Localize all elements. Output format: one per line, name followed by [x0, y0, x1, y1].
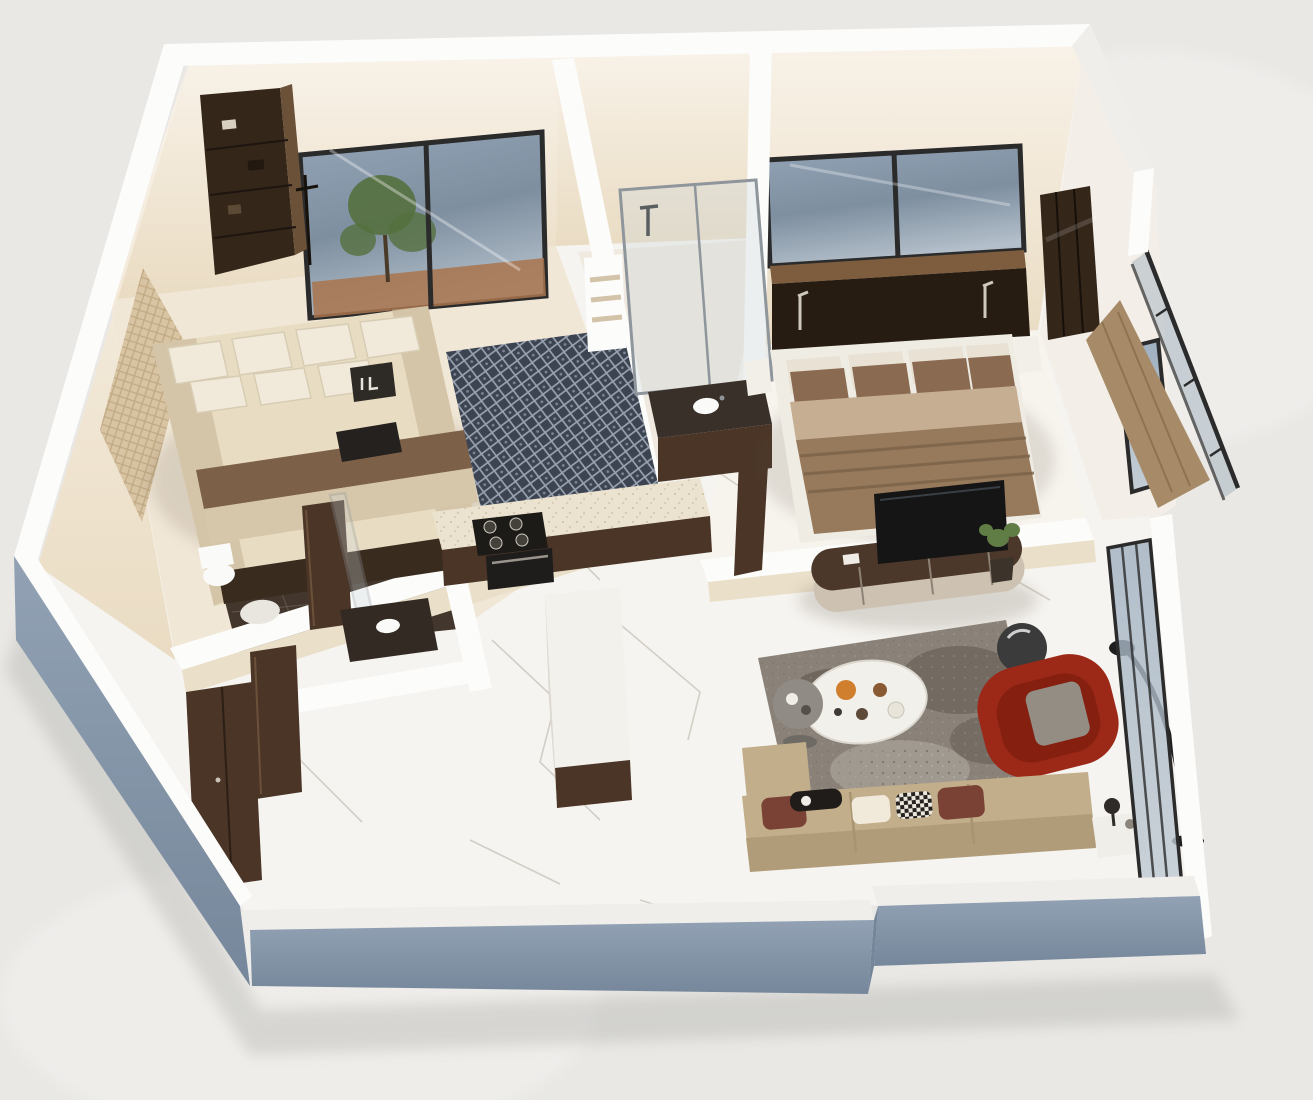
nightstand-right	[1014, 336, 1042, 374]
bottom-wall-face-right	[874, 896, 1206, 966]
sofa-pillow-maroon	[937, 784, 986, 820]
bedroom-2-windows	[766, 146, 1026, 284]
shelf-item	[248, 159, 265, 171]
lamp-stem	[1112, 806, 1114, 826]
food-dish	[836, 680, 856, 700]
towel-shelf	[584, 254, 626, 352]
console-deco	[843, 553, 860, 565]
plant-pot	[990, 557, 1014, 583]
plate	[888, 702, 904, 718]
cup	[834, 708, 842, 716]
nightstand-left	[744, 358, 772, 396]
shelf-item	[222, 119, 237, 129]
shelf-item	[228, 204, 242, 214]
bed-1-tablet	[350, 362, 396, 402]
bottom-wall-face-left	[250, 920, 874, 994]
sofa-pillow-pattern	[895, 791, 933, 820]
wardrobe-handle	[216, 778, 221, 783]
food-dish	[873, 683, 887, 697]
bedroom-1-window	[300, 132, 546, 318]
bedroom-2-wardrobe	[1040, 186, 1100, 340]
floor-plan-render	[0, 0, 1313, 1100]
island-end-panel	[555, 760, 632, 808]
cup	[786, 693, 798, 705]
apartment	[14, 24, 1238, 994]
canister	[801, 705, 811, 715]
island-top	[545, 587, 630, 768]
faucet	[720, 396, 725, 401]
sofa-pillow-white	[851, 794, 891, 824]
food-dish	[856, 708, 868, 720]
